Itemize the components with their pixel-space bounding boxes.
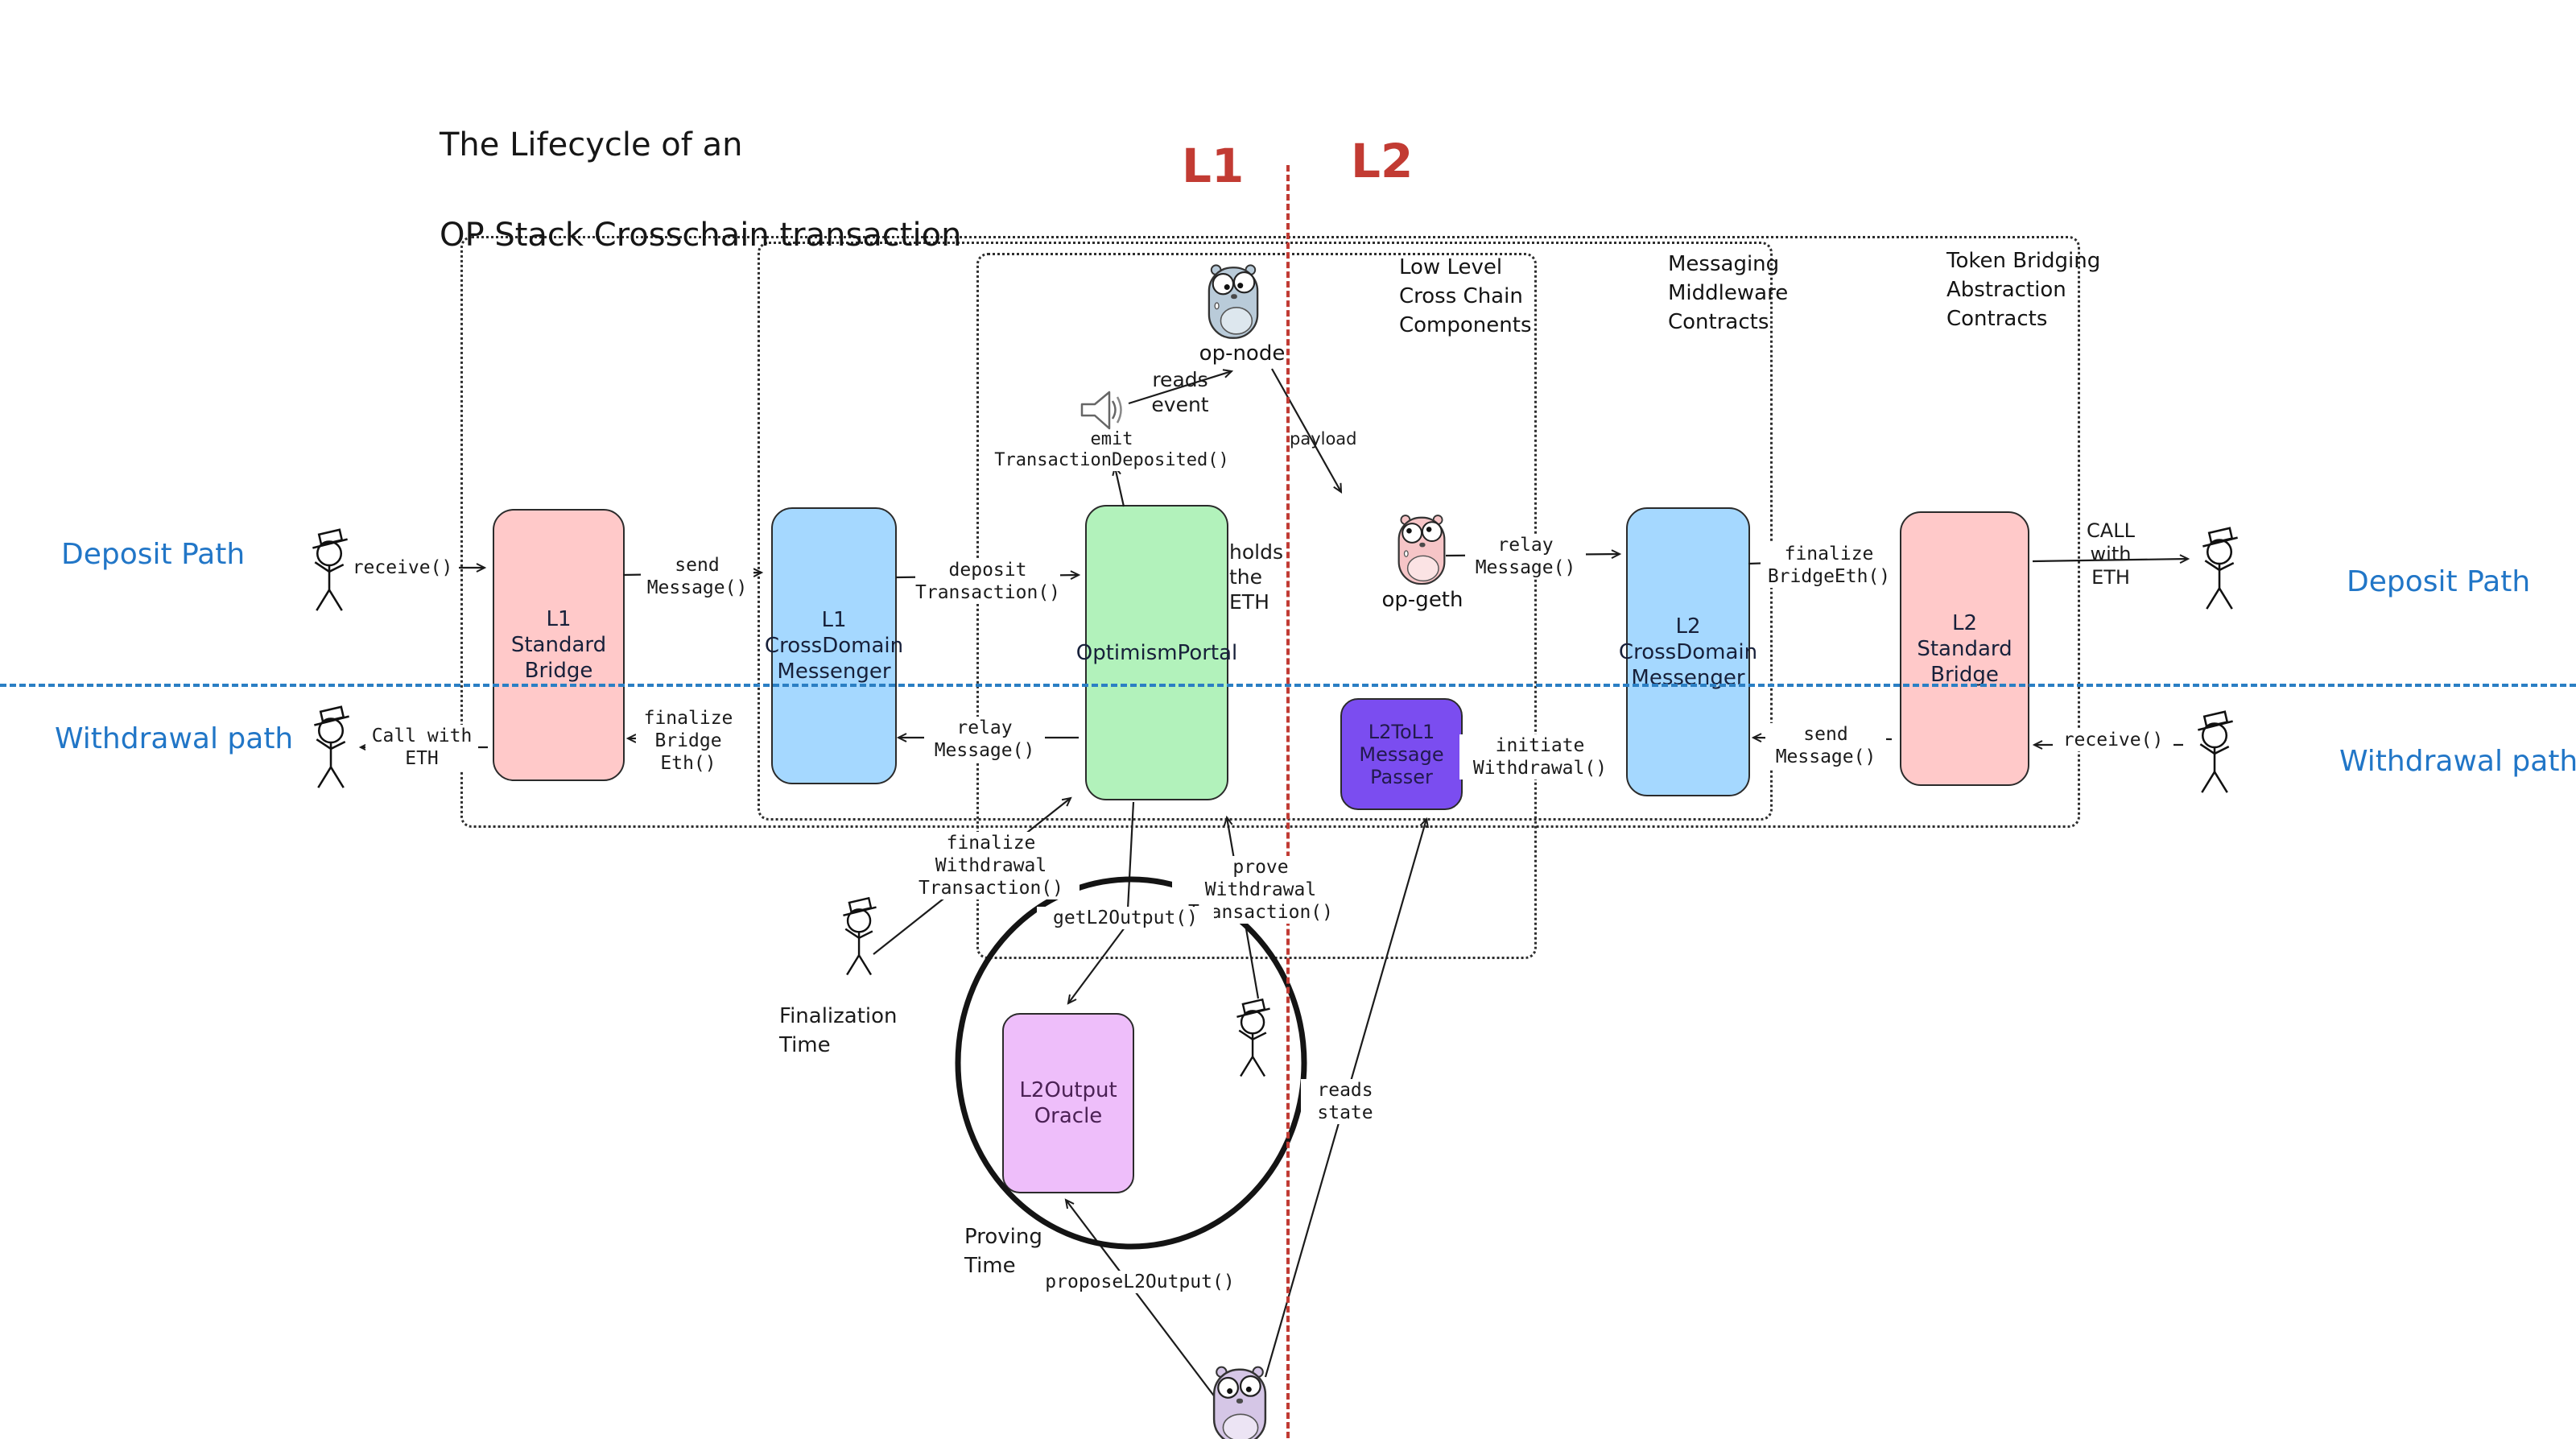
edge-label-receive-deposit: receive() (346, 556, 459, 579)
deposit-path-label-right: Deposit Path (2347, 565, 2530, 598)
op-node-gopher-icon (1206, 261, 1261, 343)
note-holds-the-eth: holds the ETH (1229, 540, 1302, 614)
arrow-propose-l2-output (1066, 1200, 1216, 1398)
edge-label-initiate-withdrawal: initiate Withdrawal() (1459, 734, 1620, 779)
event-megaphone-icon (1075, 388, 1125, 433)
note-proving-time: Proving Time (964, 1222, 1069, 1280)
edge-label-relay-message-deposit: relay Message() (1465, 534, 1586, 579)
op-proposer-gopher-icon (1211, 1363, 1269, 1439)
edge-label-reads-event: reads event (1132, 367, 1228, 417)
op-geth-gopher-icon (1396, 511, 1447, 589)
edge-label-call-with-eth-withdrawal: Call with ETH (365, 725, 478, 770)
edge-label-finalize-withdrawal-transaction: finalize Withdrawal Transaction() (902, 832, 1080, 899)
edge-label-emit-transaction-deposited: emit TransactionDeposited() (991, 429, 1232, 471)
edge-label-finalize-bridge-eth-withdrawal: finalize Bridge Eth() (636, 707, 741, 775)
withdrawal-path-label-right: Withdrawal path (2339, 745, 2576, 778)
deposit-path-label-left: Deposit Path (61, 538, 245, 571)
edge-label-get-l2-output: getL2Output() (1037, 907, 1214, 929)
withdrawal-path-label-left: Withdrawal path (55, 722, 293, 755)
edge-label-reads-state: reads state (1301, 1079, 1389, 1124)
edge-label-finalize-bridgeeth: finalize BridgeEth() (1761, 543, 1897, 588)
user-stick-figure-deposit-left (306, 522, 354, 617)
user-stick-figure-finalization (836, 891, 884, 981)
edge-label-send-message-withdrawal: send Message() (1765, 723, 1886, 768)
l1-l2-divider-line (1286, 165, 1290, 1438)
user-stick-figure-prover (1230, 992, 1277, 1082)
diagram-canvas: Low Level Cross Chain Components Messagi… (0, 0, 2576, 1439)
edge-label-send-message-deposit: send Message() (641, 554, 753, 599)
user-stick-figure-withdrawal-left (308, 699, 356, 794)
edge-label-deposit-transaction: deposit Transaction() (915, 559, 1060, 604)
edge-label-payload: payload (1290, 429, 1362, 449)
edge-label-receive-withdrawal: receive() (2053, 729, 2173, 751)
user-stick-figure-withdrawal-right (2191, 704, 2240, 799)
edge-label-relay-message-withdrawal: relay Message() (924, 717, 1045, 762)
op-node-label: op-node (1198, 341, 1286, 366)
edge-label-call-with-eth-deposit: CALL with ETH (2066, 519, 2155, 589)
op-geth-label: op-geth (1378, 588, 1467, 612)
note-finalization-time: Finalization Time (779, 1002, 916, 1060)
user-stick-figure-deposit-right (2196, 520, 2244, 615)
arrow-emit-event (1115, 467, 1124, 507)
